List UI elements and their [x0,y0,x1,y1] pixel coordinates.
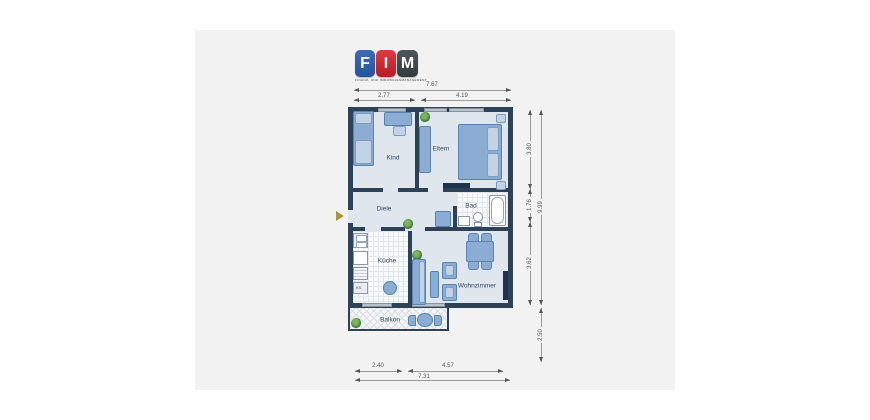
room-label-eltern: Eltern [433,146,450,153]
dim-right-lower: 3.62 [527,255,533,271]
dining-table [466,241,494,262]
balcony-chair-2 [434,315,442,326]
plant-icon [351,318,361,328]
radiator-wohnzimmer [503,271,508,300]
balkon-wall [348,308,350,331]
room-label-wohnzimmer: Wohnzimmer [458,283,496,290]
window-eltern-1 [424,108,447,112]
dim-top-total: 7.67 [424,82,440,88]
page: F I M FINANZ- UND IMMOBILIENMANAGEMENT K… [0,0,870,420]
kitchen-sink-basin [356,235,367,242]
radiator-eltern [443,183,470,188]
blanket-kind [355,140,372,164]
dim-top-left: 2.77 [376,93,392,99]
bathtub-inner [491,197,504,224]
dim-right-middle: 1.76 [527,197,533,213]
room-label-kueche: Küche [378,258,396,265]
toilet-tank [474,222,482,227]
dimension-line [354,100,415,101]
toilet [473,212,483,222]
wall-segment [353,227,365,231]
balkon-wall [447,308,449,331]
dim-top-right: 4.19 [454,93,470,99]
balcony-chair-1 [408,315,416,326]
wall-segment [381,227,405,231]
wall-segment [353,188,383,192]
wardrobe-eltern [419,126,431,173]
room-label-kind: Kind [386,155,399,162]
dim-right-upper: 3.80 [527,141,533,157]
logo-tagline: FINANZ- UND IMMOBILIENMANAGEMENT [355,78,419,82]
nightstand-2 [496,181,506,190]
dimension-line [421,100,511,101]
dishwasher [353,267,368,280]
logo-tile-i-icon: I [376,50,396,77]
dimension-line [408,371,503,372]
balcony-table [417,313,433,327]
nightstand-1 [496,114,506,123]
armchair-2-cushion [445,287,454,298]
logo-tile-m-icon: M [397,50,418,77]
dimension-line [355,380,510,381]
dining-chair-3 [468,261,479,270]
wall-segment [453,206,457,227]
room-label-balkon: Balkon [380,317,400,324]
room-label-bad: Bad [465,203,477,210]
wall-segment [425,227,508,231]
dimension-line [354,90,511,91]
dim-bottom-total: 7.31 [416,374,432,380]
dimension-line [355,371,402,372]
logo-letter-i: I [384,55,388,73]
wall-segment [398,188,428,192]
window-eltern-2 [449,108,484,112]
dining-chair-4 [481,261,492,270]
wardrobe-diele [435,211,451,227]
balkon-wall [348,329,449,331]
entrance-opening [348,210,353,223]
logo-letter-f: F [360,55,370,73]
room-label-diele: Diele [377,206,392,213]
fridge-label: KS [356,285,361,290]
kitchen-table [383,281,397,295]
dim-bottom-right: 4.57 [440,363,456,369]
dim-right-extension: 2.50 [538,327,544,343]
window-kueche [362,303,392,307]
stove [353,251,368,265]
pillow-eltern-2 [487,153,499,177]
sofa-cushions [419,261,425,303]
plant-icon [420,112,430,122]
kitchen-sink-basin2 [356,242,367,248]
logo-tile-f-icon: F [355,50,375,77]
bathroom-sink [458,216,470,226]
plant-icon [403,219,413,229]
logo-letter-m: M [401,55,414,73]
desk-kind [384,112,412,126]
entrance-arrow-icon [336,211,344,221]
armchair-1-cushion [445,265,454,276]
dim-bottom-left: 2.40 [370,363,386,369]
coffee-table [430,271,439,298]
pillow-kind [355,113,372,124]
dim-right-total: 9.99 [538,199,544,215]
chair-kind [393,126,406,136]
pillow-eltern-1 [487,127,499,151]
